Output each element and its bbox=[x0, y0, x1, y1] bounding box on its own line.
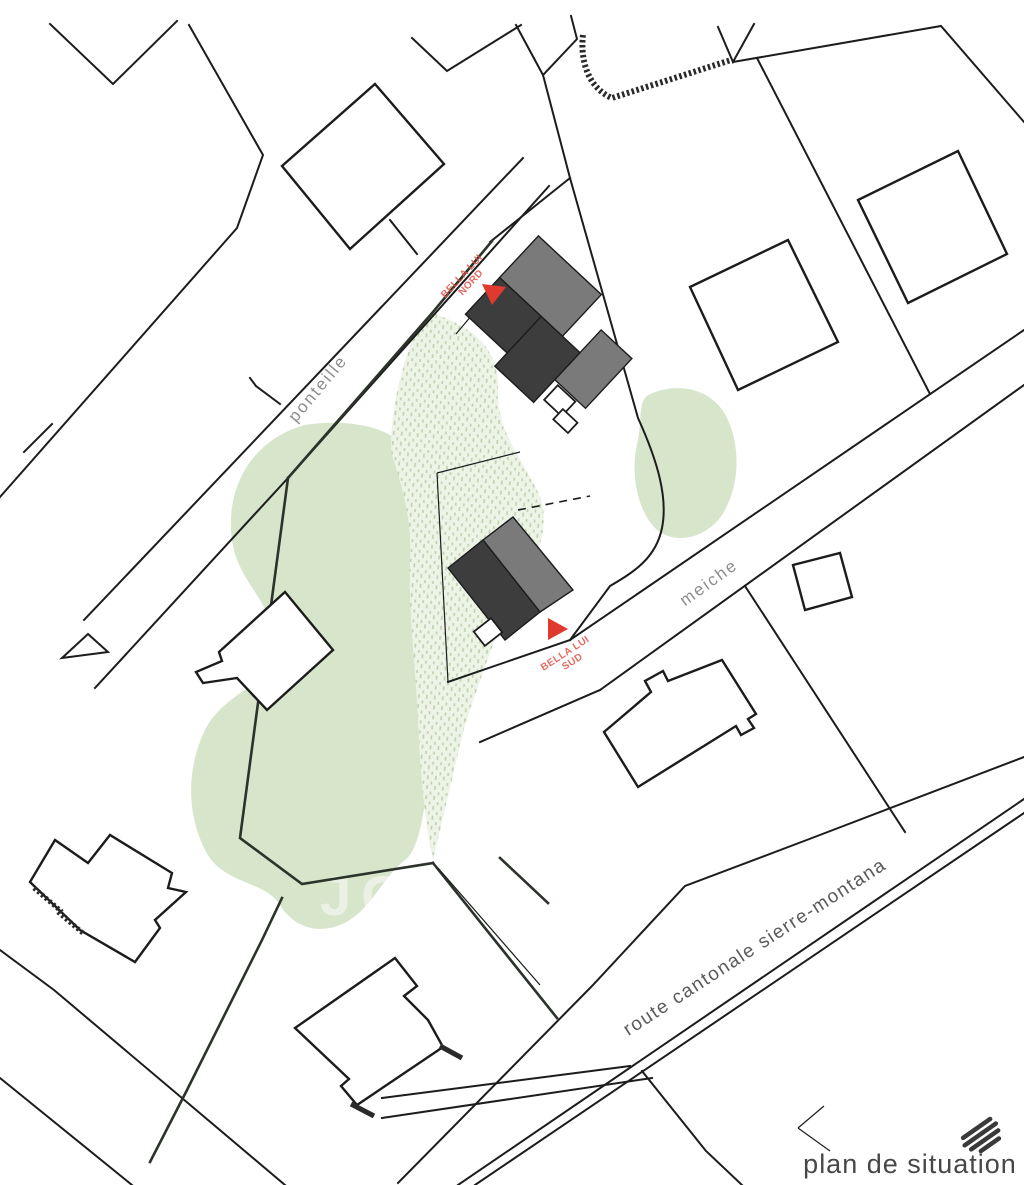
road-end-arrow bbox=[62, 634, 108, 658]
building-outline bbox=[604, 660, 756, 787]
lot-line bbox=[490, 178, 570, 242]
parcel-line bbox=[24, 424, 52, 452]
parcel-line bbox=[745, 586, 905, 832]
parcel-line bbox=[642, 1071, 742, 1185]
parcel-line bbox=[718, 24, 754, 62]
street-label-ponteille: ponteille bbox=[284, 351, 351, 426]
parcel-line bbox=[0, 950, 285, 1185]
building-outline bbox=[30, 835, 186, 962]
parcel-line bbox=[390, 220, 417, 254]
road-edge-route-cantonale bbox=[475, 813, 1024, 1185]
wall-stub bbox=[440, 1046, 462, 1058]
street-label-route-cantonale: route cantonale sierre-montana bbox=[620, 854, 891, 1040]
building-outline bbox=[282, 84, 444, 249]
site-plan-svg: JOU bbox=[0, 0, 1024, 1185]
boundary-line bbox=[433, 863, 557, 1018]
boundary-line bbox=[500, 858, 548, 903]
building-outline bbox=[858, 151, 1007, 303]
street-label-meiche: meiche bbox=[676, 555, 741, 610]
parcel-line bbox=[412, 25, 521, 71]
title-block: plan de situation bbox=[803, 1118, 1017, 1179]
road-edge-route-cantonale bbox=[458, 799, 1024, 1185]
boundary-line bbox=[150, 898, 282, 1162]
road-edge-route-cantonale bbox=[382, 1078, 652, 1118]
lot-line bbox=[480, 690, 600, 742]
building-outline bbox=[690, 240, 838, 390]
wall-stub bbox=[351, 1104, 374, 1116]
sud-marker-icon bbox=[548, 618, 568, 640]
driveway-hatched-path bbox=[582, 35, 731, 98]
parcel-line bbox=[0, 25, 263, 497]
parcel-line bbox=[733, 26, 1024, 122]
parcel-line bbox=[516, 16, 577, 75]
parcel-line bbox=[250, 378, 280, 404]
parcel-line bbox=[0, 1078, 132, 1185]
building-outline bbox=[793, 553, 852, 610]
site-plan-page: JOU bbox=[0, 0, 1024, 1185]
page-title: plan de situation bbox=[803, 1149, 1017, 1179]
building-outline bbox=[295, 958, 443, 1105]
parcel-line bbox=[50, 21, 177, 84]
green-solid-blob-northeast bbox=[635, 388, 737, 538]
parcel-line bbox=[798, 1106, 830, 1151]
